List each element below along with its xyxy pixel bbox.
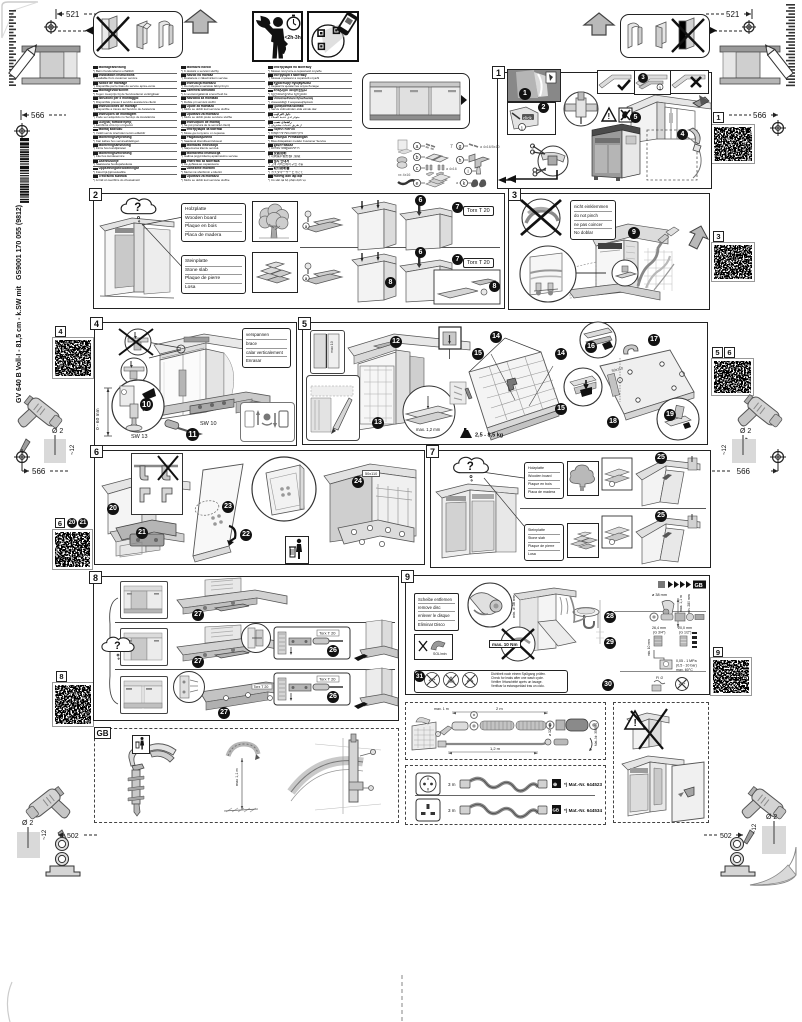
svg-text:⊕: ⊕ — [553, 782, 557, 788]
svg-text:max. 1 m: max. 1 m — [434, 707, 449, 711]
svg-text:566: 566 — [737, 467, 751, 476]
svg-text:521: 521 — [66, 10, 80, 19]
svg-text:?: ? — [134, 202, 141, 214]
svg-text:max 10: max 10 — [330, 341, 334, 353]
svg-text:566: 566 — [753, 111, 767, 120]
svg-text:Torx T 20: Torx T 20 — [319, 677, 336, 682]
svg-text:(0,5 - 10 bar): (0,5 - 10 bar) — [676, 664, 697, 668]
svg-text:Ø 2: Ø 2 — [22, 820, 33, 827]
svg-text:min. 10 mm: min. 10 mm — [647, 639, 651, 656]
svg-text:Ø 2: Ø 2 — [766, 814, 777, 821]
svg-text:SOL/min: SOL/min — [433, 652, 447, 656]
svg-text:!: ! — [634, 718, 637, 729]
svg-text:20,0 mm: 20,0 mm — [678, 626, 692, 630]
svg-text:xx 4x16: xx 4x16 — [398, 173, 410, 177]
svg-text:!: ! — [608, 112, 611, 121]
svg-text:max 1,1 m: max 1,1 m — [235, 768, 239, 786]
svg-text:3 m: 3 m — [448, 808, 456, 813]
svg-text:?: ? — [114, 640, 121, 652]
svg-text:FI ∅: FI ∅ — [656, 676, 664, 680]
svg-text:1,2 m: 1,2 m — [490, 746, 501, 751]
svg-text:ø 38 mm: ø 38 mm — [652, 593, 667, 597]
svg-text:Ø 2: Ø 2 — [740, 428, 751, 435]
svg-text:521: 521 — [726, 10, 740, 19]
svg-text:GB: GB — [553, 808, 560, 813]
svg-text:a: a — [416, 144, 419, 150]
svg-text:26,4 mm: 26,4 mm — [652, 626, 666, 630]
svg-text:e: e — [416, 181, 419, 187]
svg-text:ø 32 mm: ø 32 mm — [548, 722, 552, 736]
svg-text:a 4x16: a 4x16 — [446, 167, 457, 171]
svg-text:g: g — [459, 144, 462, 150]
svg-text:?: ? — [467, 461, 474, 473]
svg-text:b: b — [416, 155, 419, 161]
svg-text:GB: GB — [695, 583, 703, 589]
svg-text:a 4x16/5x10: a 4x16/5x10 — [480, 145, 500, 149]
svg-text:566: 566 — [32, 467, 46, 476]
svg-text:2 m: 2 m — [496, 706, 503, 711]
svg-text:max. 60°C: max. 60°C — [676, 668, 693, 672]
svg-text:(G 3/4"): (G 3/4") — [653, 631, 665, 635]
svg-text:Ø 2: Ø 2 — [52, 428, 63, 435]
svg-text:0,05 - 1 MPa: 0,05 - 1 MPa — [676, 659, 697, 663]
svg-text:Mat.-Nr. 358564: Mat.-Nr. 358564 — [594, 723, 598, 746]
svg-text:3 m: 3 m — [448, 782, 456, 787]
svg-text:i: i — [467, 169, 468, 175]
svg-text:502: 502 — [720, 833, 732, 840]
svg-text:max. 1,2 mm: max. 1,2 mm — [416, 427, 441, 432]
svg-text:502: 502 — [67, 833, 79, 840]
svg-text:click: click — [523, 116, 532, 121]
svg-text:566: 566 — [31, 111, 45, 120]
svg-text:7: 7 — [450, 144, 453, 150]
svg-text:<2h-3h: <2h-3h — [285, 35, 301, 41]
svg-text:(G 1/2"): (G 1/2") — [679, 631, 691, 635]
svg-text:*) Mat.-Nr. 644523: *) Mat.-Nr. 644523 — [564, 782, 602, 787]
svg-text:2,5 - 8,5 kg: 2,5 - 8,5 kg — [475, 433, 503, 439]
svg-text:Torx T 20: Torx T 20 — [254, 685, 269, 689]
svg-text:h: h — [459, 158, 462, 164]
svg-text:*) Mat.-Nr. 644534: *) Mat.-Nr. 644534 — [564, 808, 602, 813]
svg-text:Torx T 20: Torx T 20 — [319, 631, 336, 636]
